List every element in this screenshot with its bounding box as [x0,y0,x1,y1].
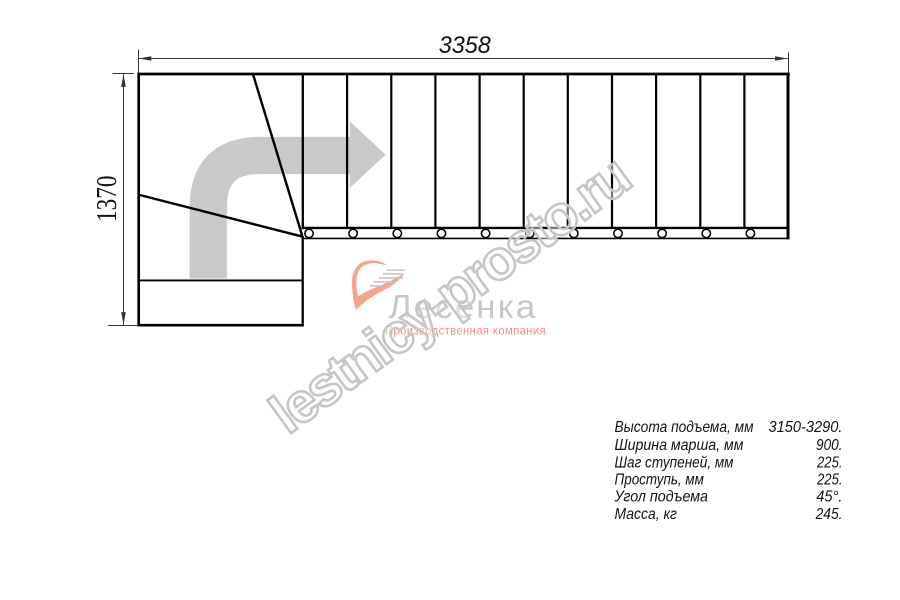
svg-text:225.: 225. [816,472,842,489]
svg-text:Шаг ступеней, мм: Шаг ступеней, мм [615,455,734,472]
svg-text:Высота подъема, мм: Высота подъема, мм [615,419,754,436]
svg-text:3358: 3358 [439,32,491,59]
svg-text:Проступь, мм: Проступь, мм [615,472,704,489]
svg-text:245.: 245. [815,506,843,523]
svg-text:1370: 1370 [92,176,123,223]
svg-text:45°.: 45°. [816,489,842,506]
svg-text:Угол подъема: Угол подъема [614,489,708,506]
svg-text:900.: 900. [816,437,843,454]
svg-text:225.: 225. [816,455,842,472]
svg-text:Ширина марша, мм: Ширина марша, мм [615,437,744,454]
svg-text:Масса, кг: Масса, кг [615,506,677,523]
svg-text:3150-3290.: 3150-3290. [769,419,843,436]
